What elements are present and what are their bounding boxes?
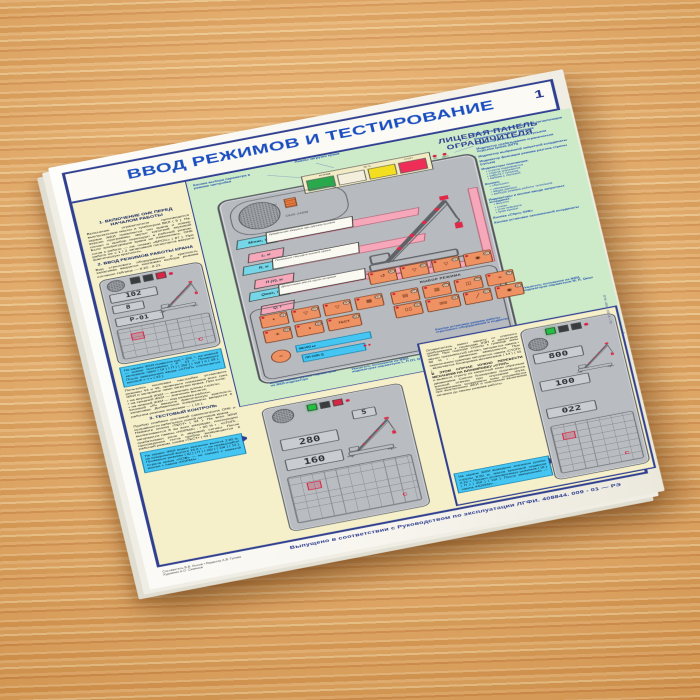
device-illustration-3: 800 100 022 С (519, 312, 650, 480)
red-c-mark: С (402, 492, 408, 497)
green-button-icon (306, 403, 317, 411)
info-box-3: На экране ЖКИ выведено значение длины ст… (453, 455, 553, 493)
poster-pad: ВВОД РЕЖИМОВ И ТЕСТИРОВАНИЕ 1 ✿ Прибор О… (48, 69, 665, 589)
page-number: 1 (533, 87, 545, 101)
power-led-icon (584, 323, 588, 326)
round-key: 40 (270, 348, 293, 364)
keypad-button: ТЕСТ43 (326, 313, 363, 332)
caption-pointer-mrq: Указатель положения на ЖКИ-индикаторах п… (522, 273, 599, 293)
crane-diagram (569, 335, 625, 379)
keypad-button: ◑36 (294, 320, 325, 338)
keypad-button: ▦35 (354, 293, 385, 311)
button-icon (130, 276, 141, 284)
red-c-mark: С (198, 337, 204, 342)
button-icon (319, 401, 330, 409)
strip-leds (363, 344, 371, 347)
speaker-icon (527, 336, 550, 352)
power-led-icon (345, 399, 349, 402)
crane-diagram (151, 274, 209, 318)
device-illustration-2: 5 280 160 С (261, 382, 431, 532)
speaker-icon (106, 279, 127, 294)
device2-indicator-row (306, 397, 350, 411)
warning-text: Ограничитель имеет защиту от опасного пр… (425, 329, 528, 397)
lcd-display: 280 (280, 429, 340, 451)
button-icon (142, 274, 153, 282)
crane-diagram (338, 410, 411, 461)
power-led-icon (169, 272, 173, 275)
stop-button-icon (332, 398, 343, 406)
right-annotations: Индикатор включения звуковой сигнализаци… (473, 115, 589, 226)
keypad-button: ☀33 (263, 326, 294, 344)
red-c-mark: С (624, 450, 630, 455)
button-icon (571, 322, 582, 330)
green-button-icon (545, 327, 556, 335)
device3-indicator-row (545, 321, 589, 335)
speaker-icon (271, 407, 296, 425)
stop-button-icon (155, 271, 166, 279)
button-icon (558, 325, 569, 333)
lcd-display: 022 (546, 400, 598, 419)
keypad-grid (550, 411, 645, 474)
device-illustration-1: 102 8 Р-01 С (98, 261, 221, 365)
